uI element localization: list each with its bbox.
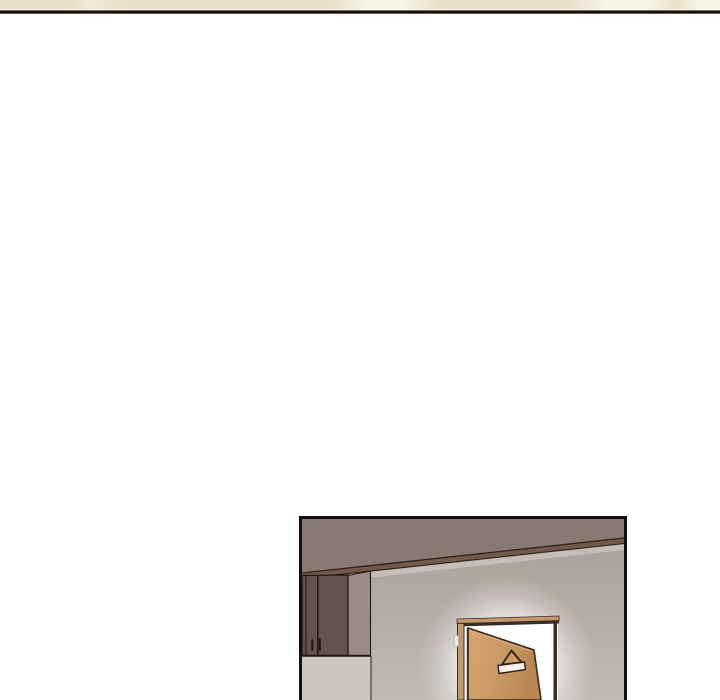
room-scene xyxy=(302,519,624,700)
previous-panel-bottom-edge xyxy=(0,0,720,14)
cabinet-handle-left xyxy=(311,640,313,652)
previous-panel-edge-art xyxy=(0,0,720,14)
panel-gutter xyxy=(0,14,720,516)
door-frame-right-jamb xyxy=(554,620,558,700)
cabinet-side xyxy=(348,571,371,656)
previous-panel-cream-band xyxy=(0,0,720,10)
alcove-lower-wall xyxy=(302,656,371,700)
door-frame-left-jamb xyxy=(458,623,465,700)
comic-panel xyxy=(299,516,627,700)
door-hinge-plate xyxy=(454,636,459,647)
previous-panel-light-seam xyxy=(0,10,720,11)
cabinet-handle-right xyxy=(319,639,321,652)
cabinet-front xyxy=(302,575,348,656)
